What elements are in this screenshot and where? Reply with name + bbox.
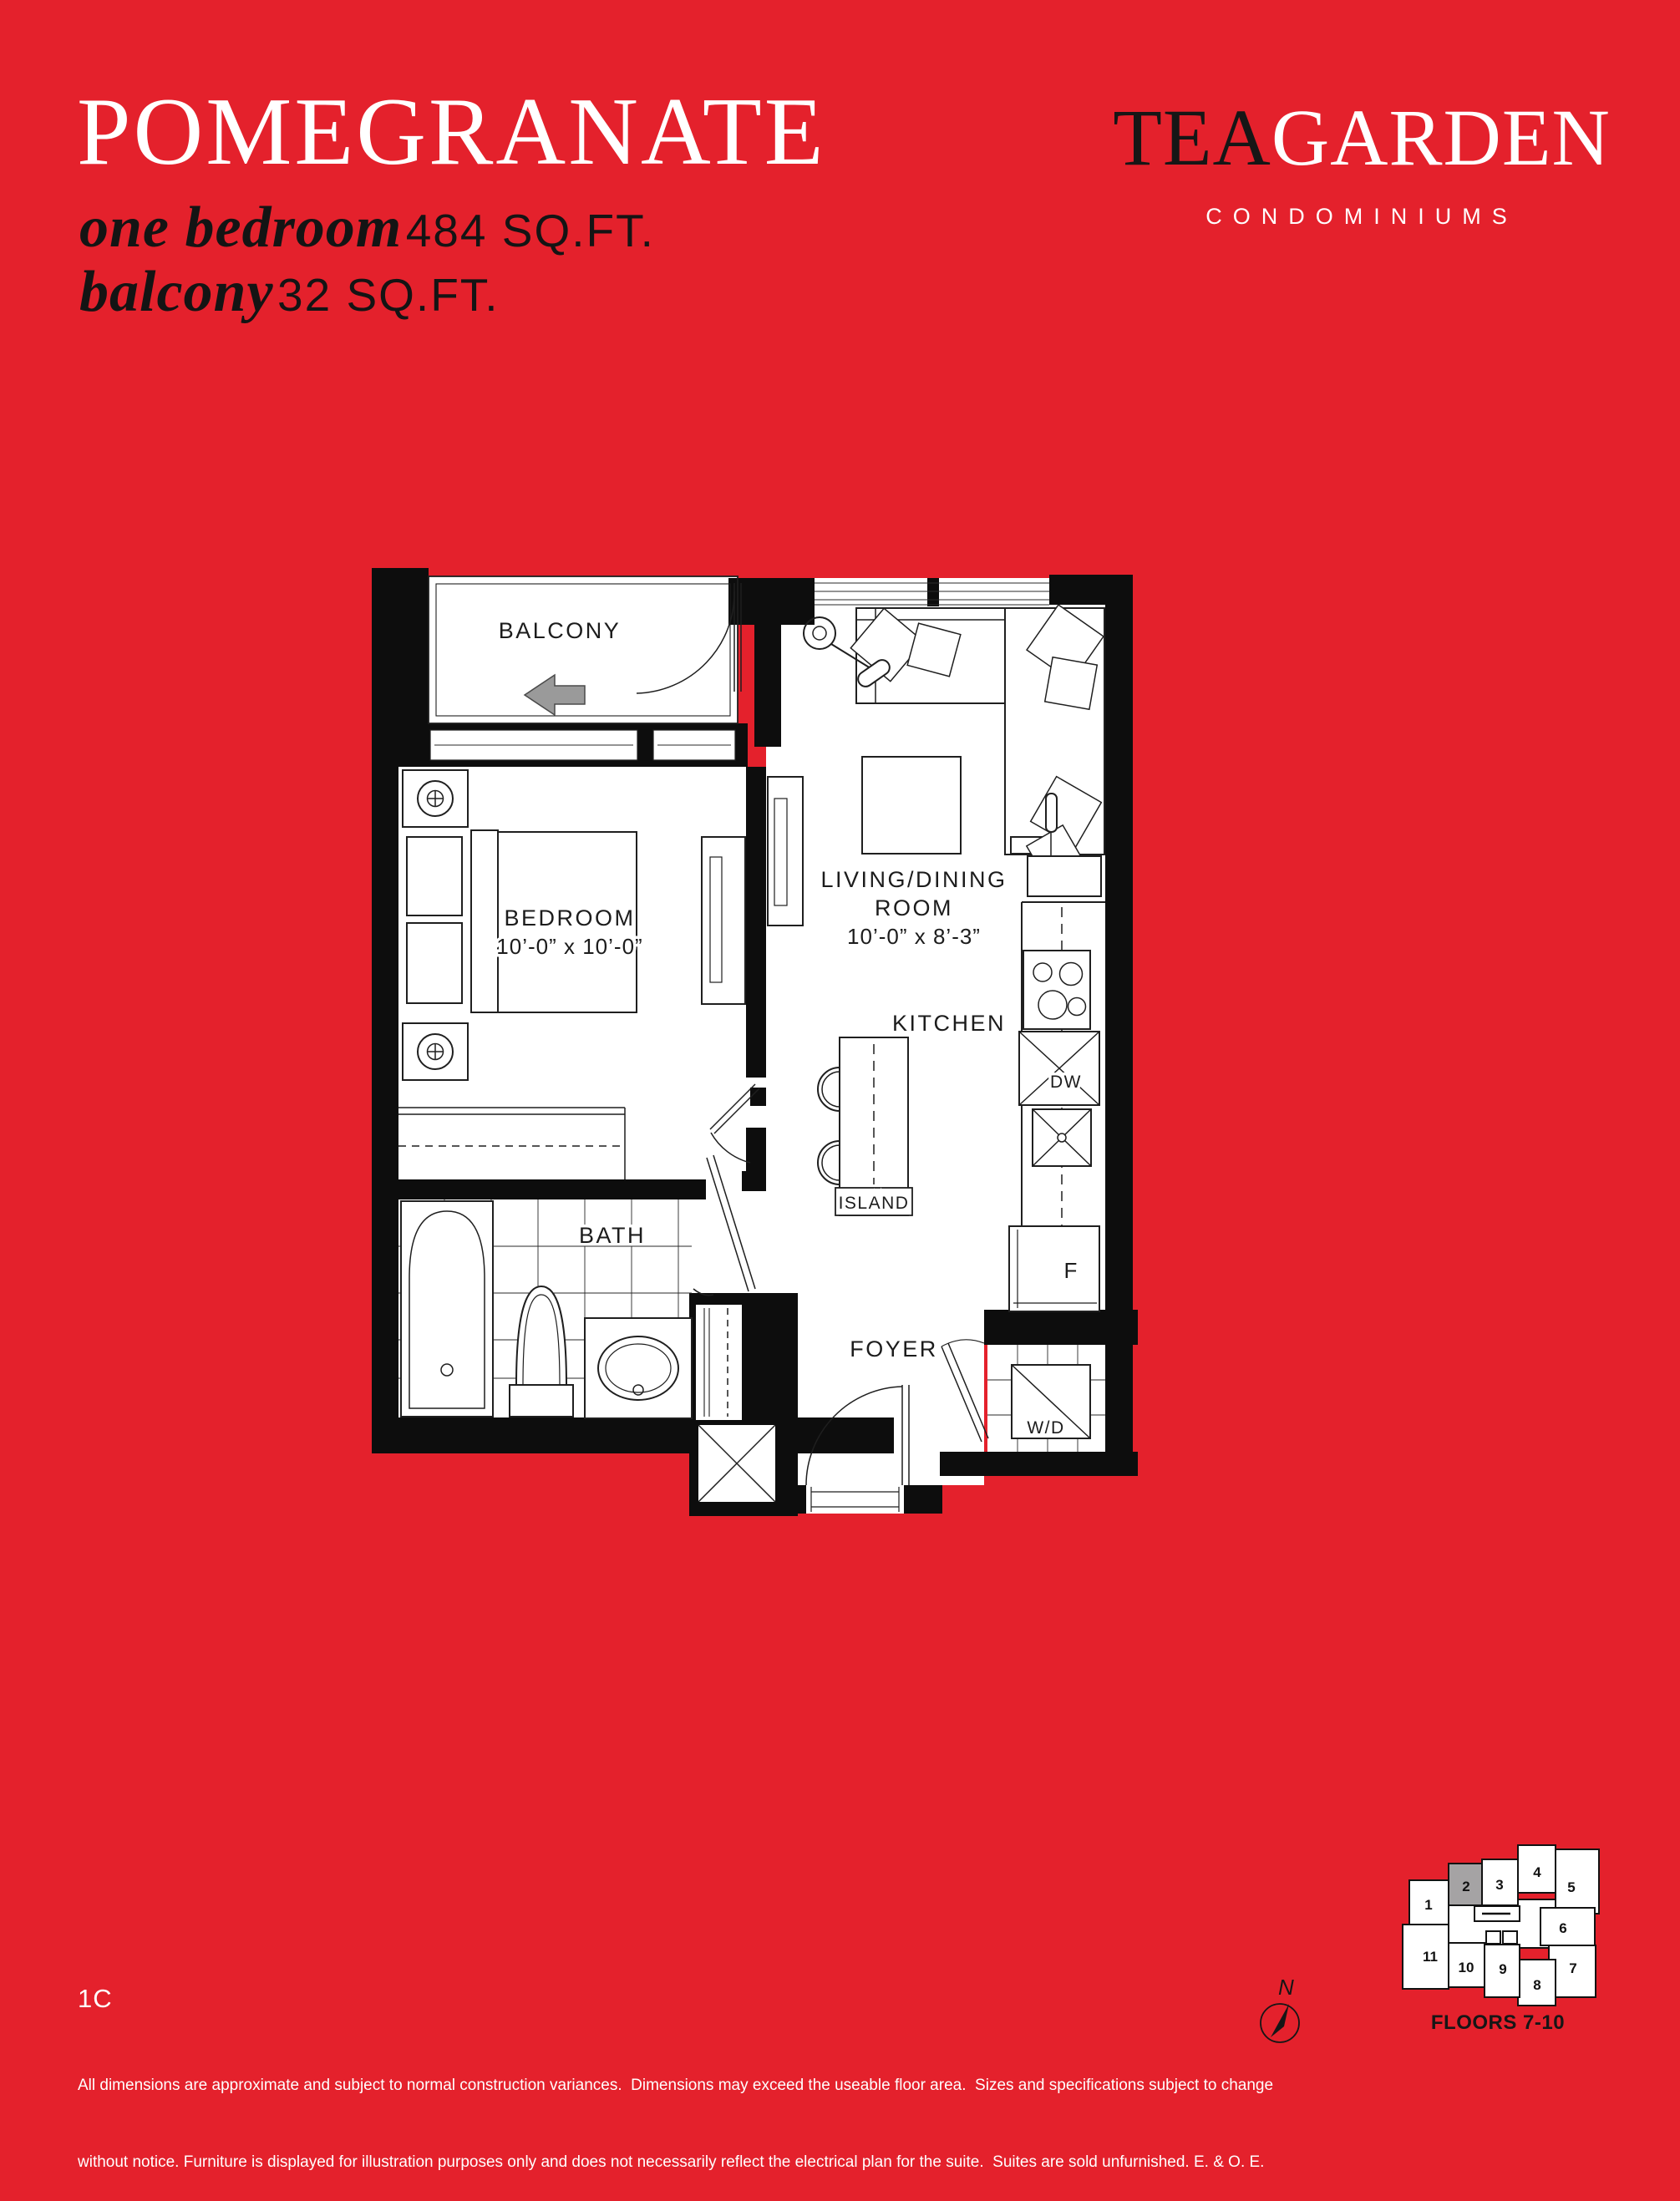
- balcony-type-label: balcony: [79, 260, 274, 324]
- keyplan-drawing: 1 2 3 4 5 6 7 8 9 10 11: [1388, 1834, 1622, 2018]
- living-label-line1: LIVING/DINING: [820, 867, 1007, 892]
- keyplan-unit-3: 3: [1495, 1877, 1503, 1893]
- living-dims: 10’-0” x 8’-3”: [847, 924, 981, 949]
- brand-word-tea: TEA: [1113, 93, 1271, 182]
- floorplan-drawing: BALCONY BEDROOM 10’-0” x 10’-0” LIVING/D…: [359, 543, 1161, 1545]
- balcony-line: balcony 32 SQ.FT.: [79, 263, 500, 322]
- disclaimer-line-2: without notice. Furniture is displayed f…: [78, 2150, 1273, 2176]
- brand-wordmark: TEAGARDEN: [1078, 94, 1646, 182]
- foyer-label: FOYER: [850, 1336, 938, 1362]
- balcony-area-value: 32 SQ.FT.: [277, 269, 500, 321]
- disclaimer-line-1: All dimensions are approximate and subje…: [78, 2073, 1273, 2099]
- keyplan-unit-11: 11: [1423, 1949, 1438, 1965]
- compass-icon: N: [1246, 1970, 1313, 2053]
- suite-area-value: 484 SQ.FT.: [406, 205, 655, 256]
- keyplan-unit-5: 5: [1567, 1879, 1575, 1895]
- keyplan-unit-8: 8: [1533, 1977, 1540, 1993]
- suite-type-label: one bedroom: [79, 195, 402, 260]
- keyplan-unit-9: 9: [1499, 1961, 1506, 1977]
- island-label: ISLAND: [839, 1194, 910, 1213]
- kitchen-label: KITCHEN: [892, 1011, 1006, 1036]
- keyplan-unit-4: 4: [1533, 1864, 1541, 1880]
- keyplan-unit-10: 10: [1459, 1960, 1474, 1975]
- dishwasher-label: DW: [1050, 1073, 1082, 1092]
- living-label-line2: ROOM: [875, 895, 953, 920]
- washer-dryer-label: W/D: [1027, 1418, 1064, 1438]
- fridge-label: F: [1064, 1258, 1079, 1283]
- disclaimer-text: All dimensions are approximate and subje…: [78, 2022, 1273, 2201]
- compass-needle: [1271, 2004, 1289, 2037]
- compass-north-label: N: [1278, 1975, 1294, 2000]
- bedroom-dims: 10’-0” x 10’-0”: [496, 934, 642, 959]
- brand-tagline: CONDOMINIUMS: [1078, 204, 1646, 230]
- keyplan-unit-6: 6: [1559, 1920, 1566, 1936]
- keyplan-unit-7: 7: [1569, 1960, 1576, 1976]
- unit-code: 1C: [78, 1984, 113, 2014]
- floors-label: FLOORS 7-10: [1381, 2011, 1615, 2035]
- keyplan-unit-1: 1: [1424, 1897, 1432, 1913]
- brand-word-garden: GARDEN: [1271, 93, 1611, 182]
- bath-label: BATH: [579, 1223, 646, 1248]
- bedroom-label: BEDROOM: [504, 905, 635, 931]
- suite-type-line: one bedroom 484 SQ.FT.: [79, 199, 655, 257]
- balcony-label: BALCONY: [499, 618, 622, 643]
- page-title: POMEGRANATE: [77, 84, 826, 180]
- brand-logo: TEAGARDEN CONDOMINIUMS: [1078, 94, 1646, 230]
- keyplan-unit-2: 2: [1462, 1879, 1469, 1894]
